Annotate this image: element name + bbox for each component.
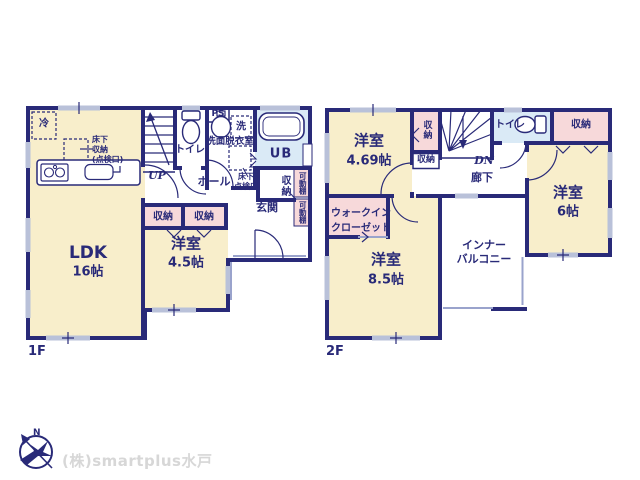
walk-in-closet-room bbox=[327, 196, 388, 237]
floor-plan-drawing bbox=[0, 0, 640, 480]
compass-north-label: N bbox=[33, 428, 41, 438]
floor-plan-page: LDK 16帖 洋室 4.5帖 冷 床下 収納 (点検口) トイレ PS 洗 洗… bbox=[0, 0, 640, 480]
ldk-room bbox=[28, 108, 145, 338]
floor1-room-fills bbox=[28, 108, 312, 338]
closet-right-room bbox=[552, 110, 610, 143]
company-logo: N bbox=[8, 426, 66, 480]
bedroom-6-room bbox=[527, 143, 610, 255]
closet-a-room bbox=[143, 205, 183, 228]
company-name: (株)smartplus水戸 bbox=[62, 450, 212, 471]
closet-b-room bbox=[183, 205, 226, 228]
floor2-thin-walls bbox=[413, 154, 492, 169]
bedroom-4-5-room bbox=[143, 228, 228, 310]
bedroom-469-room bbox=[327, 110, 412, 196]
